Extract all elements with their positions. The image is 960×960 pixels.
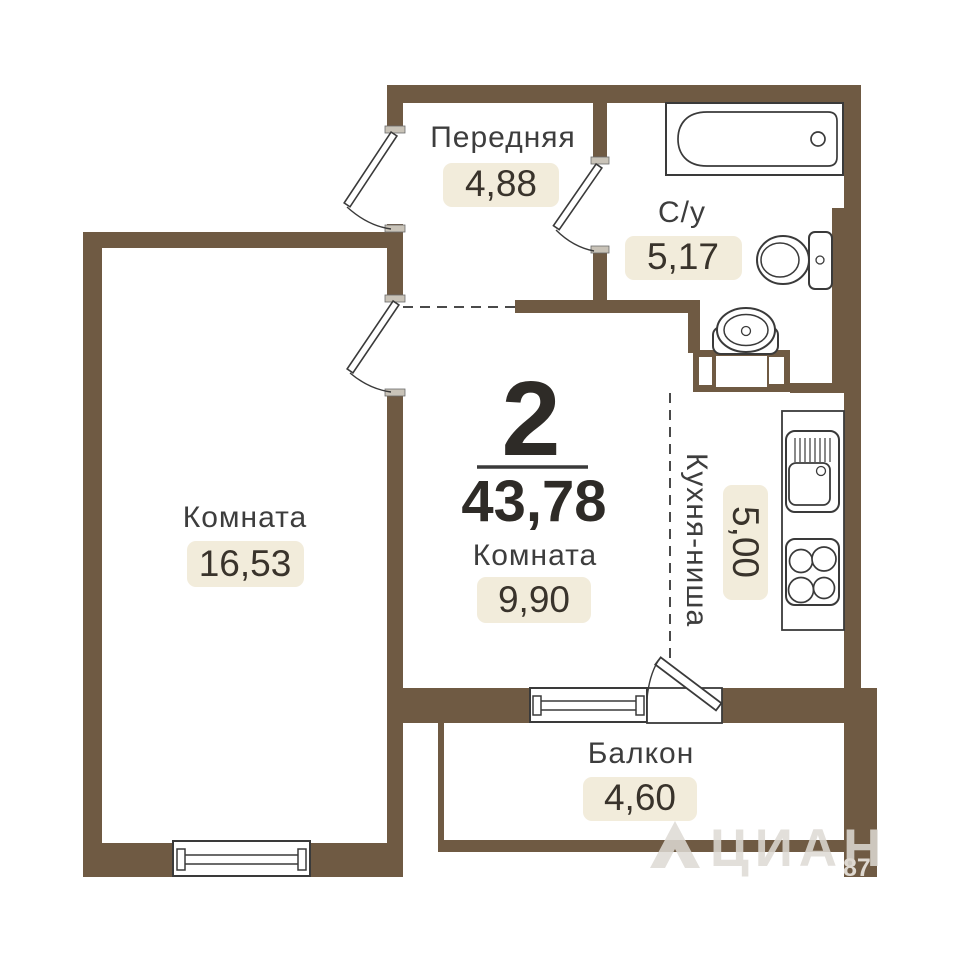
wall-segment <box>387 390 403 877</box>
window-cap <box>298 849 306 870</box>
wall-segment <box>722 688 861 723</box>
bathtub-drain <box>811 132 825 146</box>
toilet-bowl-inner <box>761 243 799 277</box>
room-area-bathroom: 5,17 <box>647 236 719 277</box>
wall-segment <box>387 248 403 302</box>
kitchen-counter <box>782 411 844 630</box>
room-name-living1: Комната <box>183 501 307 534</box>
window-frame <box>173 841 310 876</box>
stove-burner <box>812 547 836 571</box>
vanity-cells <box>699 356 784 387</box>
door-jamb <box>385 389 405 396</box>
window-room-left <box>173 841 310 876</box>
balcony-wall <box>438 723 444 843</box>
balcony-door <box>647 657 722 723</box>
door-swing-arc <box>556 230 594 251</box>
wall-segment <box>515 300 700 313</box>
room-name-living2: Комната <box>473 539 597 572</box>
kitchen-tap <box>817 467 826 476</box>
window-balcony <box>530 688 647 722</box>
room-left-door <box>347 295 405 396</box>
window-cap <box>533 696 541 715</box>
wall-segment <box>387 85 861 103</box>
wall-segment <box>593 247 607 307</box>
door-swing-arc <box>347 207 391 229</box>
room-area-living2: 9,90 <box>498 579 570 620</box>
wall-segment <box>83 232 403 248</box>
room-name-hallway: Передняя <box>430 121 576 154</box>
wall-segment <box>844 103 861 688</box>
room-area-balcony: 4,60 <box>604 777 676 818</box>
watermark: ЦИАН 87 <box>650 819 887 882</box>
vanity-cell <box>769 357 784 384</box>
duct-wall <box>832 208 844 390</box>
floorplan: Передняя 4,88 С/у 5,17 Комната 16,53 2 4… <box>0 0 960 960</box>
bathtub <box>666 103 843 175</box>
floor-plan-svg: Передняя 4,88 С/у 5,17 Комната 16,53 2 4… <box>0 0 960 960</box>
door-jamb <box>385 126 405 133</box>
stove-burner <box>789 578 814 603</box>
unit-total-area: 43,78 <box>461 469 606 534</box>
wall-segment <box>403 688 530 723</box>
window-frame <box>530 688 647 722</box>
toilet <box>757 232 832 289</box>
door-jamb <box>385 295 405 302</box>
vanity-cell <box>699 357 712 385</box>
stove-burner <box>790 550 813 573</box>
toilet-button <box>816 256 824 264</box>
vanity-cell <box>716 356 767 387</box>
stove-burner <box>814 578 835 599</box>
door-leaf <box>344 132 397 207</box>
wall-segment <box>688 313 700 353</box>
window-cap <box>636 696 644 715</box>
room-area-kitchen: 5,00 <box>725 506 766 578</box>
room-area-hallway: 4,88 <box>465 163 537 204</box>
door-leaf <box>347 301 399 373</box>
wall-segment <box>790 383 844 393</box>
door-leaf <box>553 164 601 230</box>
washbasin <box>713 308 778 354</box>
room-area-living1: 16,53 <box>199 543 292 584</box>
room-name-balcony: Балкон <box>588 737 695 770</box>
wall-segment <box>593 103 607 163</box>
room-name-bathroom: С/у <box>658 196 706 229</box>
watermark-number: 87 <box>843 854 871 882</box>
room-name-kitchen: Кухня-ниша <box>680 453 713 627</box>
bathroom-door <box>553 157 609 253</box>
unit-rooms-count: 2 <box>502 360 561 478</box>
door-jamb <box>591 157 609 164</box>
washbasin-tap <box>742 327 751 336</box>
door-jamb <box>591 246 609 253</box>
wall-segment <box>83 248 102 877</box>
entrance-door <box>344 126 405 232</box>
window-cap <box>177 849 185 870</box>
